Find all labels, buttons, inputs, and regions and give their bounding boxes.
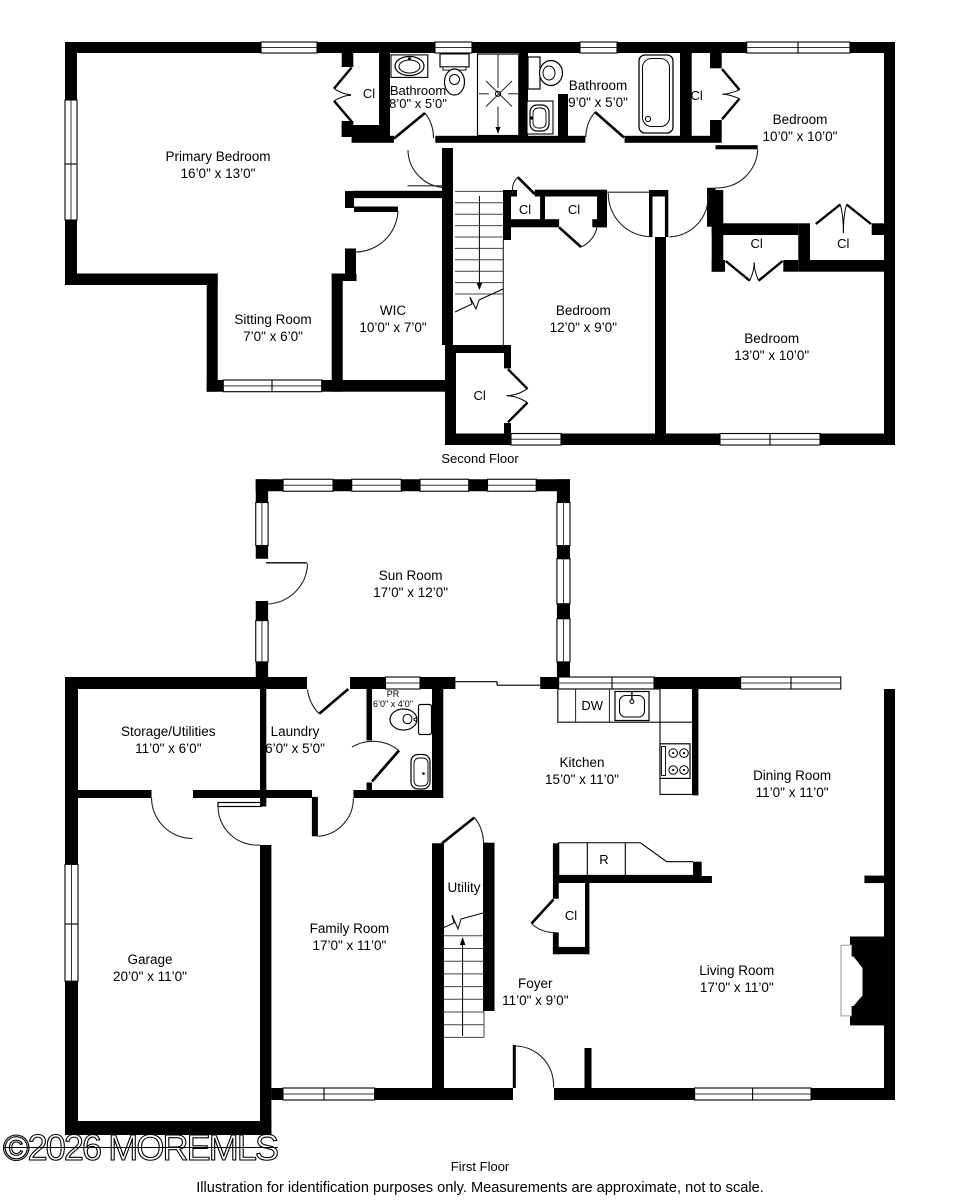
svg-text:17’0" x 11’0": 17’0" x 11’0" [700,980,774,995]
svg-text:WIC: WIC [380,303,406,318]
svg-text:Cl: Cl [565,908,577,923]
svg-text:Second Floor: Second Floor [441,451,519,466]
svg-text:Storage/Utilities: Storage/Utilities [121,724,216,739]
svg-text:12’0" x 9’0": 12’0" x 9’0" [550,320,618,335]
svg-text:PR: PR [387,689,400,699]
svg-text:Living Room: Living Room [699,963,774,978]
svg-text:Sitting Room: Sitting Room [234,312,311,327]
svg-text:Bedroom: Bedroom [744,331,799,346]
svg-text:Illustration for identificatio: Illustration for identification purposes… [196,1180,764,1196]
svg-text:Garage: Garage [127,952,172,967]
svg-text:8’0" x 5’0": 8’0" x 5’0" [389,96,447,111]
svg-text:Cl: Cl [568,202,580,217]
svg-text:Bathroom: Bathroom [569,78,628,93]
svg-text:Laundry: Laundry [271,724,320,739]
svg-text:11’0" x 9’0": 11’0" x 9’0" [502,993,569,1008]
svg-text:17’0" x 12’0": 17’0" x 12’0" [373,585,448,600]
svg-text:Cl: Cl [837,236,849,251]
svg-text:16’0" x 13’0": 16’0" x 13’0" [181,166,256,181]
svg-text:Kitchen: Kitchen [559,755,604,770]
svg-text:10’0" x 10’0": 10’0" x 10’0" [763,129,838,144]
svg-text:Dining Room: Dining Room [753,768,831,783]
svg-text:Utility: Utility [448,880,481,895]
svg-text:17’0" x 11’0": 17’0" x 11’0" [312,938,386,953]
svg-text:Bedroom: Bedroom [773,112,828,127]
svg-text:Bedroom: Bedroom [556,303,611,318]
svg-text:9’0" x 5’0": 9’0" x 5’0" [568,95,628,110]
svg-text:11’0" x 11’0": 11’0" x 11’0" [756,785,829,800]
svg-text:Cl: Cl [751,236,763,251]
svg-text:Family Room: Family Room [310,921,390,936]
svg-text:7’0" x 6’0": 7’0" x 6’0" [243,329,303,344]
svg-text:Cl: Cl [519,202,531,217]
svg-text:First Floor: First Floor [451,1159,510,1174]
svg-text:Cl: Cl [474,388,486,403]
svg-text:Foyer: Foyer [518,976,553,991]
svg-text:15’0" x 11’0": 15’0" x 11’0" [545,772,619,787]
svg-text:13’0" x 10’0": 13’0" x 10’0" [734,348,809,363]
svg-text:Cl: Cl [691,88,703,103]
svg-text:20’0" x 11’0": 20’0" x 11’0" [113,969,187,984]
svg-text:Cl: Cl [363,86,375,101]
svg-text:6’0" x 4’0": 6’0" x 4’0" [373,699,413,709]
svg-text:Sun Room: Sun Room [379,568,443,583]
svg-text:6’0" x 5’0": 6’0" x 5’0" [265,741,325,756]
svg-text:10’0" x 7’0": 10’0" x 7’0" [359,320,427,335]
svg-text:R: R [599,852,608,867]
svg-text:11’0" x 6’0": 11’0" x 6’0" [135,741,202,756]
svg-text:Primary Bedroom: Primary Bedroom [165,149,270,164]
svg-text:DW: DW [581,698,603,713]
